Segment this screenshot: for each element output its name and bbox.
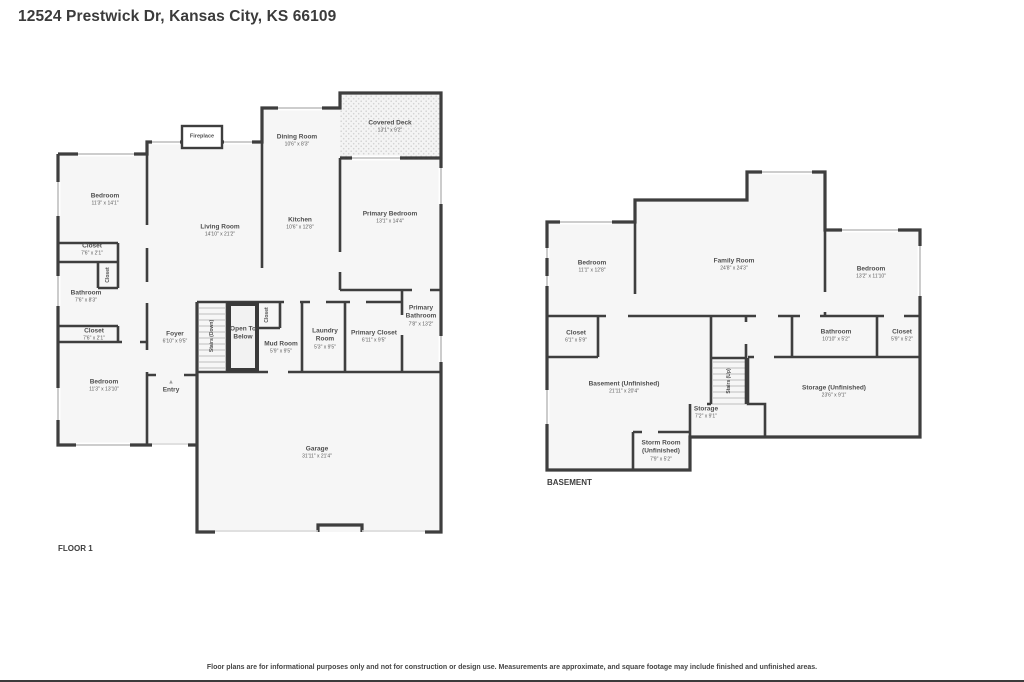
room-name: Closet bbox=[83, 328, 105, 336]
room-dims: 7'6" x 8'3" bbox=[71, 298, 102, 305]
room-label-basement-bedroom-left: Bedroom 11'1" x 12'8" bbox=[578, 260, 607, 275]
floorplan-page: 12524 Prestwick Dr, Kansas City, KS 6610… bbox=[0, 0, 1024, 682]
room-name: Fireplace bbox=[190, 133, 214, 140]
room-name: Foyer bbox=[163, 331, 188, 339]
room-name: Bathroom bbox=[71, 290, 102, 298]
room-name: Covered Deck bbox=[368, 120, 411, 128]
room-label-primary-bedroom: Primary Bedroom 13'1" x 14'4" bbox=[363, 211, 418, 226]
room-dims: 10'6" x 8'3" bbox=[277, 142, 317, 149]
room-dims: 7'8" x 13'2" bbox=[399, 321, 443, 328]
room-name: Storm Room (Unfinished) bbox=[634, 439, 688, 456]
room-label-storage-unfinished: Storage (Unfinished) 23'6" x 9'1" bbox=[802, 385, 866, 400]
room-name: Basement (Unfinished) bbox=[589, 381, 660, 389]
room-dims: 14'10" x 21'2" bbox=[200, 232, 239, 239]
room-dims: 11'3" x 14'1" bbox=[91, 201, 120, 208]
room-name: Storage bbox=[694, 406, 718, 414]
room-dims: 5'9" x 5'2" bbox=[891, 337, 913, 344]
room-name: Bathroom bbox=[821, 329, 852, 337]
room-label-family-room: Family Room 24'8" x 24'3" bbox=[714, 258, 755, 273]
room-name: Entry bbox=[163, 386, 180, 394]
room-label-basement-bedroom-right: Bedroom 13'2" x 11'10" bbox=[856, 266, 886, 281]
room-label-garage: Garage 31'11" x 21'4" bbox=[302, 446, 332, 461]
room-label-closet-2: Closet 7'6" x 2'1" bbox=[83, 328, 105, 343]
room-label-closet-1: Closet 7'6" x 2'1" bbox=[81, 243, 103, 258]
room-dims: 13'1" x 14'4" bbox=[363, 219, 418, 226]
room-label-basement-unfinished: Basement (Unfinished) 21'11" x 20'4" bbox=[589, 381, 660, 396]
room-dims: 6'1" x 5'9" bbox=[565, 338, 587, 345]
room-label-closet-small: Closet bbox=[105, 267, 112, 282]
room-dims: 11'3" x 13'10" bbox=[89, 387, 119, 394]
room-label-mud-room: Mud Room 5'9" x 9'5" bbox=[264, 341, 298, 356]
room-dims: 10'10" x 5'2" bbox=[821, 337, 852, 344]
room-dims: 21'11" x 20'4" bbox=[589, 389, 660, 396]
basement-room-fills bbox=[547, 172, 920, 470]
room-label-storage: Storage 7'2" x 9'1" bbox=[694, 406, 718, 421]
room-name: Closet bbox=[105, 267, 112, 282]
room-label-stairs-up: Stairs (Up) bbox=[726, 368, 733, 393]
room-label-dining-room: Dining Room 10'6" x 8'3" bbox=[277, 134, 317, 149]
room-label-closet-mid: Closet bbox=[264, 307, 271, 322]
disclaimer-text: Floor plans are for informational purpos… bbox=[0, 664, 1024, 671]
room-name: Family Room bbox=[714, 258, 755, 266]
room-name: Storage (Unfinished) bbox=[802, 385, 866, 393]
room-name: Primary Bathroom bbox=[399, 304, 443, 321]
room-name: Stairs (Up) bbox=[726, 368, 733, 393]
room-dims: 5'9" x 9'5" bbox=[264, 349, 298, 356]
room-dims: 11'1" x 12'8" bbox=[578, 268, 607, 275]
room-name: Bedroom bbox=[856, 266, 886, 274]
floorplan-drawing bbox=[0, 0, 1024, 682]
room-label-covered-deck: Covered Deck 13'1" x 9'2" bbox=[368, 120, 411, 135]
room-name: Primary Bedroom bbox=[363, 211, 418, 219]
room-label-basement-closet-left: Closet 6'1" x 5'9" bbox=[565, 330, 587, 345]
room-label-storm-room: Storm Room (Unfinished) 7'9" x 5'2" bbox=[634, 439, 688, 462]
room-name: Bedroom bbox=[578, 260, 607, 268]
room-dims: 31'11" x 21'4" bbox=[302, 454, 332, 461]
room-dims: 13'2" x 11'10" bbox=[856, 274, 886, 281]
room-label-bedroom-1: Bedroom 11'3" x 14'1" bbox=[91, 193, 120, 208]
room-dims: 6'11" x 9'5" bbox=[351, 338, 397, 345]
room-dims: 24'8" x 24'3" bbox=[714, 266, 755, 273]
room-name: Bedroom bbox=[91, 193, 120, 201]
room-label-open-to-below: Open To Below bbox=[226, 326, 260, 343]
room-dims: 10'6" x 12'8" bbox=[286, 225, 313, 232]
room-label-bathroom: Bathroom 7'6" x 8'3" bbox=[71, 290, 102, 305]
room-name: Primary Closet bbox=[351, 330, 397, 338]
room-name: Garage bbox=[302, 446, 332, 454]
room-name: Closet bbox=[264, 307, 271, 322]
room-dims: 7'6" x 2'1" bbox=[81, 251, 103, 258]
room-name: Laundry Room bbox=[307, 327, 343, 344]
room-name: Living Room bbox=[200, 224, 239, 232]
room-name: Closet bbox=[565, 330, 587, 338]
room-name: Kitchen bbox=[286, 217, 313, 225]
room-dims: 6'10" x 9'5" bbox=[163, 339, 188, 346]
room-label-fireplace: Fireplace bbox=[190, 133, 214, 140]
room-dims: 7'2" x 9'1" bbox=[694, 414, 718, 421]
room-label-stairs-down: Stairs (Down) bbox=[209, 320, 216, 352]
room-label-primary-closet: Primary Closet 6'11" x 9'5" bbox=[351, 330, 397, 345]
room-name: Stairs (Down) bbox=[209, 320, 216, 352]
room-name: Dining Room bbox=[277, 134, 317, 142]
floor1-plan-label: FLOOR 1 bbox=[58, 544, 93, 553]
room-label-basement-bathroom: Bathroom 10'10" x 5'2" bbox=[821, 329, 852, 344]
room-label-kitchen: Kitchen 10'6" x 12'8" bbox=[286, 217, 313, 232]
room-dims: 5'3" x 9'5" bbox=[307, 344, 343, 351]
room-name: Mud Room bbox=[264, 341, 298, 349]
room-name: Open To Below bbox=[226, 326, 260, 343]
room-label-laundry-room: Laundry Room 5'3" x 9'5" bbox=[307, 327, 343, 350]
basement-plan-label: BASEMENT bbox=[547, 478, 592, 487]
room-dims: 13'1" x 9'2" bbox=[368, 128, 411, 135]
room-label-foyer: Foyer 6'10" x 9'5" bbox=[163, 331, 188, 346]
room-name: Closet bbox=[891, 329, 913, 337]
room-name: Closet bbox=[81, 243, 103, 251]
entry-arrow-icon: ▲ bbox=[163, 379, 180, 385]
room-label-primary-bathroom: Primary Bathroom 7'8" x 13'2" bbox=[399, 304, 443, 327]
room-dims: 23'6" x 9'1" bbox=[802, 393, 866, 400]
room-label-entry: ▲ Entry bbox=[163, 379, 180, 394]
room-label-living-room: Living Room 14'10" x 21'2" bbox=[200, 224, 239, 239]
room-label-basement-closet-right: Closet 5'9" x 5'2" bbox=[891, 329, 913, 344]
room-name: Bedroom bbox=[89, 379, 119, 387]
room-dims: 7'9" x 5'2" bbox=[634, 456, 688, 463]
room-label-bedroom-2: Bedroom 11'3" x 13'10" bbox=[89, 379, 119, 394]
room-dims: 7'6" x 2'1" bbox=[83, 336, 105, 343]
